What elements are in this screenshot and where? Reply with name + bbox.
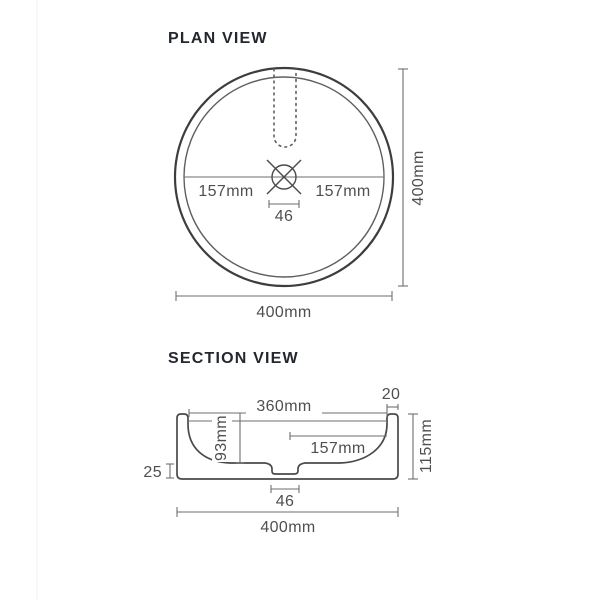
section-rim-thickness-label: 20 — [382, 386, 401, 403]
plan-view-title: PLAN VIEW — [168, 30, 268, 47]
section-inner-width-label: 360mm — [256, 398, 311, 415]
section-view: SECTION VIEW — [143, 350, 435, 536]
section-bowl-radius-dim-line — [290, 432, 387, 440]
plan-height-dim-line — [398, 69, 408, 286]
overflow-slot-hidden-line — [274, 69, 296, 147]
section-height-dim-line — [408, 414, 418, 479]
section-overall-height-label: 115mm — [418, 419, 435, 473]
plan-overall-height-label: 400mm — [410, 150, 427, 205]
section-base-height-label: 25 — [143, 464, 162, 481]
plan-width-dim-line — [176, 291, 392, 301]
section-overall-width-label: 400mm — [260, 519, 315, 536]
plan-radius-left-label: 157mm — [198, 183, 253, 200]
section-drain-dim-line — [271, 485, 299, 493]
section-rim-thickness-dim-line — [387, 404, 398, 410]
plan-radius-right-label: 157mm — [315, 183, 370, 200]
plan-overall-width-label: 400mm — [256, 304, 311, 321]
section-drain-width-label: 46 — [276, 493, 295, 510]
plan-view: PLAN VIEW — [168, 30, 427, 321]
plan-drain-width-label: 46 — [275, 208, 294, 225]
section-bowl-depth-label: 93mm — [213, 415, 230, 461]
drain-symbol — [267, 160, 301, 194]
section-base-height-dim-line — [166, 464, 174, 478]
section-bowl-radius-label: 157mm — [310, 440, 365, 457]
basin-technical-drawing: PLAN VIEW — [0, 0, 600, 600]
plan-drain-dim-line — [269, 200, 299, 208]
section-view-title: SECTION VIEW — [168, 350, 299, 367]
technical-drawing-page: PLAN VIEW — [0, 0, 600, 600]
